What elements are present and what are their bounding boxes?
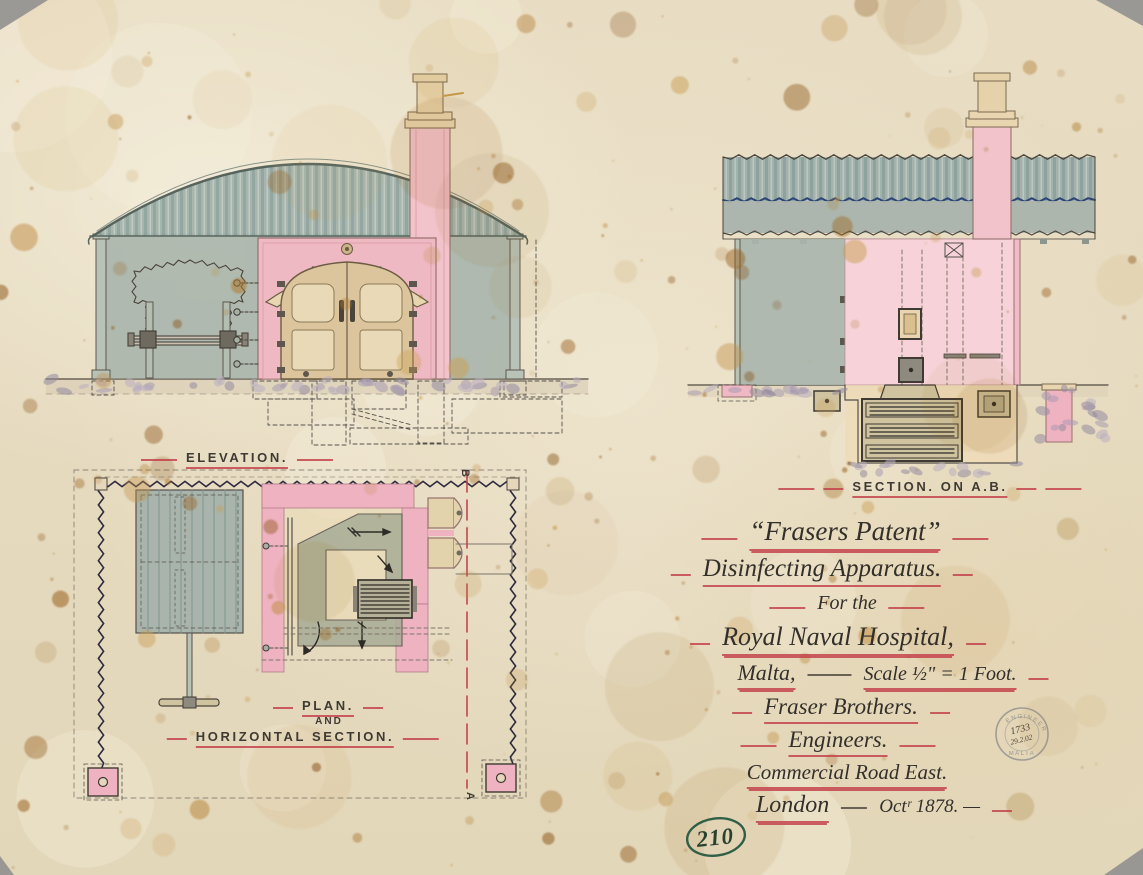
retorts	[428, 498, 462, 568]
chimney-section	[966, 73, 1018, 239]
section-marker-a: A	[464, 792, 476, 800]
corner-post-br	[482, 760, 520, 796]
section-side-wall	[737, 239, 845, 385]
stamp-rim-bottom: MALTA	[1009, 751, 1036, 757]
drawing-sheet: FRASERS PATENT DISINFECTING APPARATUS	[0, 0, 1143, 875]
roof-band	[723, 155, 1095, 244]
corner-post-bl	[84, 764, 122, 800]
grate-plan	[353, 580, 417, 618]
section-marker-b: B	[459, 469, 471, 477]
bench-plan	[136, 490, 243, 708]
section-drawing	[688, 73, 1108, 463]
drawing-art: FRASERS PATENT DISINFECTING APPARATUS	[0, 0, 1143, 875]
